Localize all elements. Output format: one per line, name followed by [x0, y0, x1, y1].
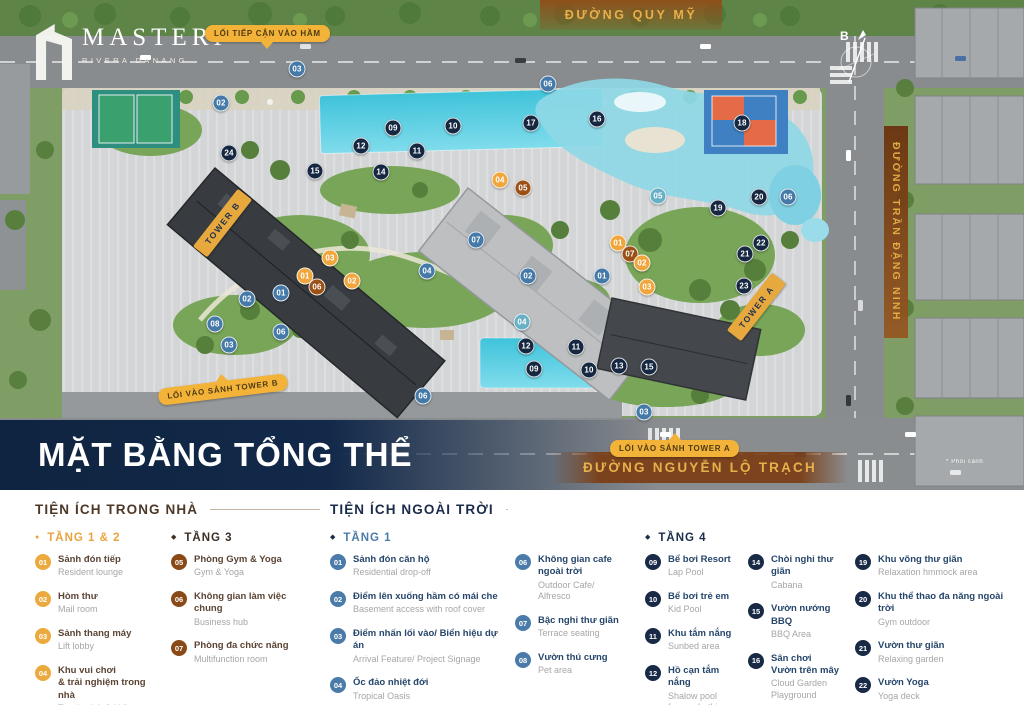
svg-text:B: B — [840, 29, 849, 43]
masteri-logo-icon — [36, 24, 72, 80]
item-name-en: Basement access with roof cover — [353, 604, 498, 616]
road-label-quy-my: ĐƯỜNG QUY MỸ — [540, 0, 722, 30]
map-marker-03: 03 — [322, 250, 339, 267]
item-name-vi: Vườn thú cưng — [538, 652, 608, 664]
legend-item: 19Khu võng thư giãnRelaxation hmmock are… — [855, 554, 1015, 579]
floor-group-label: TẦNG 1 — [343, 532, 391, 544]
legend-item: 22Vườn YogaYoga deck — [855, 677, 1015, 702]
item-name-en: Sunbed area — [668, 641, 731, 653]
item-name-en: Arrival Feature/ Project Signage — [353, 654, 505, 666]
item-name-en: Pet area — [538, 665, 608, 677]
indoor-amenities-section: TIỆN ÍCH TRONG NHÀ ●TẦNG 1 & 201Sảnh đón… — [35, 502, 320, 705]
map-marker-22: 22 — [753, 235, 770, 252]
item-name-vi: Hòm thư — [58, 591, 98, 603]
map-marker-20: 20 — [751, 189, 768, 206]
group-bullet-icon: ◆ — [645, 534, 650, 541]
map-marker-03: 03 — [289, 61, 306, 78]
legend-item: 03Điểm nhấn lối vào/ Biển hiệu dự ánArri… — [330, 628, 515, 665]
map-marker-01: 01 — [273, 285, 290, 302]
map-marker-11: 11 — [409, 143, 426, 160]
item-number-badge: 22 — [855, 677, 871, 693]
item-name-vi: Sảnh đón tiếp — [58, 554, 123, 566]
item-number-badge: 03 — [35, 628, 51, 644]
legend-column: 14Chòi nghỉ thư giãnCabana15Vườn nướng B… — [748, 530, 855, 705]
map-marker-02: 02 — [213, 95, 230, 112]
item-name-vi: Điểm nhấn lối vào/ Biển hiệu dự án — [353, 628, 505, 653]
item-number-badge: 11 — [645, 628, 661, 644]
map-marker-11: 11 — [568, 339, 585, 356]
item-name-en: Lift lobby — [58, 641, 131, 653]
site-plan-map: MASTERI RIVERA DANANG ĐƯỜNG QUY MỸ ĐƯỜNG… — [0, 0, 1024, 490]
group-bullet-icon: ◆ — [330, 534, 335, 541]
legend-item: 04Khu vui chơi & trải nghiệm trong nhàTe… — [35, 665, 171, 705]
item-number-badge: 15 — [748, 603, 764, 619]
map-marker-06: 06 — [415, 388, 432, 405]
item-name-vi: Vườn Yoga — [878, 677, 929, 689]
item-number-badge: 21 — [855, 640, 871, 656]
item-number-badge: 06 — [171, 591, 187, 607]
item-name-en: Cloud Garden Playground — [771, 678, 839, 701]
legend-item: 07Bậc nghỉ thư giãnTerrace seating — [515, 615, 645, 640]
basement-access-badge: LỐI TIẾP CẬN VÀO HẦM — [205, 25, 330, 42]
item-number-badge: 20 — [855, 591, 871, 607]
outdoor-section-title: TIỆN ÍCH NGOÀI TRỜI — [330, 502, 494, 517]
legend-item: 20Khu thể thao đa năng ngoài trờiGym out… — [855, 591, 1015, 628]
map-marker-21: 21 — [737, 246, 754, 263]
map-marker-08: 08 — [207, 316, 224, 333]
item-name-en: Terrace seating — [538, 628, 619, 640]
map-marker-03: 03 — [636, 404, 653, 421]
item-name-vi: Vườn thư giãn — [878, 640, 944, 652]
map-marker-12: 12 — [518, 338, 535, 355]
map-marker-05: 05 — [515, 180, 532, 197]
legend-item: 16Sân chơi Vườn trên mâyCloud Garden Pla… — [748, 653, 855, 702]
item-name-vi: Khu võng thư giãn — [878, 554, 978, 566]
item-number-badge: 16 — [748, 653, 764, 669]
legend-item: 02Điểm lên xuống hầm có mái cheBasement … — [330, 591, 515, 616]
map-marker-17: 17 — [523, 115, 540, 132]
item-name-vi: Vườn nướng BBQ — [771, 603, 845, 628]
item-number-badge: 19 — [855, 554, 871, 570]
legend-item: 15Vườn nướng BBQBBQ Area — [748, 603, 855, 640]
item-name-en: Relaxing garden — [878, 654, 944, 666]
item-name-vi: Khu vui chơi & trải nghiệm trong nhà — [58, 665, 161, 702]
item-name-en: Resident lounge — [58, 567, 123, 579]
map-marker-01: 01 — [594, 268, 611, 285]
map-marker-15: 15 — [307, 163, 324, 180]
map-marker-19: 19 — [710, 200, 727, 217]
legend-item: 07Phòng đa chức năngMultifunction room — [171, 640, 321, 665]
item-number-badge: 02 — [330, 591, 346, 607]
map-marker-06: 06 — [309, 279, 326, 296]
item-number-badge: 07 — [515, 615, 531, 631]
brand-logo: MASTERI RIVERA DANANG — [36, 24, 227, 80]
amenities-legend: TIỆN ÍCH TRONG NHÀ ●TẦNG 1 & 201Sảnh đón… — [0, 490, 1024, 705]
item-name-en: Relaxation hmmock area — [878, 567, 978, 579]
map-marker-04: 04 — [514, 314, 531, 331]
render-credit-note: * Phối cảnh — [946, 459, 983, 465]
legend-item: 11Khu tắm nắngSunbed area — [645, 628, 748, 653]
item-name-vi: Sảnh thang máy — [58, 628, 131, 640]
map-marker-03: 03 — [639, 279, 656, 296]
item-number-badge: 01 — [35, 554, 51, 570]
item-number-badge: 04 — [35, 665, 51, 681]
item-name-vi: Khu thể thao đa năng ngoài trời — [878, 591, 1005, 616]
map-marker-14: 14 — [373, 164, 390, 181]
legend-column: ◆TẦNG 409Bể bơi ResortLap Pool10Bể bơi t… — [645, 530, 748, 705]
legend-column: ●TẦNG 1 & 201Sảnh đón tiếpResident loung… — [35, 530, 171, 705]
item-name-vi: Hồ cạn tắm nắng — [668, 665, 738, 690]
map-marker-04: 04 — [492, 172, 509, 189]
item-name-vi: Bể bơi Resort — [668, 554, 731, 566]
legend-item: 06Không gian cafe ngoài trờiOutdoor Cafe… — [515, 554, 645, 603]
legend-item: 12Hồ cạn tắm nắngShalow pool for sun bat… — [645, 665, 748, 705]
item-number-badge: 09 — [645, 554, 661, 570]
legend-item: 01Sảnh đón tiếpResident lounge — [35, 554, 171, 579]
map-marker-06: 06 — [540, 76, 557, 93]
item-name-en: Business hub — [194, 617, 311, 629]
item-name-en: Yoga deck — [878, 691, 929, 703]
road-label-tran-dang-ninh: ĐƯỜNG TRẦN ĐẶNG NINH — [884, 126, 908, 338]
map-marker-02: 02 — [520, 268, 537, 285]
legend-item: 10Bể bơi trẻ emKid Pool — [645, 591, 748, 616]
item-name-vi: Phòng Gym & Yoga — [194, 554, 282, 566]
item-name-vi: Bể bơi trẻ em — [668, 591, 729, 603]
item-name-vi: Ốc đảo nhiệt đới — [353, 677, 428, 689]
divider-line — [210, 509, 320, 510]
page-title: MẶT BẰNG TỔNG THỂ — [38, 436, 412, 474]
floor-group-label: TẦNG 1 & 2 — [47, 532, 120, 544]
map-marker-09: 09 — [526, 361, 543, 378]
item-name-en: Kid Pool — [668, 604, 729, 616]
map-marker-10: 10 — [445, 118, 462, 135]
item-number-badge: 04 — [330, 677, 346, 693]
legend-column: 19Khu võng thư giãnRelaxation hmmock are… — [855, 530, 1015, 705]
legend-item: 01Sảnh đón căn hộResidential drop-off — [330, 554, 515, 579]
item-name-vi: Sân chơi Vườn trên mây — [771, 653, 839, 678]
item-number-badge: 05 — [171, 554, 187, 570]
legend-item: 08Vườn thú cưngPet area — [515, 652, 645, 677]
legend-item: 02Hòm thưMail room — [35, 591, 171, 616]
group-bullet-icon: ◆ — [171, 534, 176, 541]
map-marker-03: 03 — [221, 337, 238, 354]
item-name-en: Lap Pool — [668, 567, 731, 579]
tower-a-entrance-badge: LỐI VÀO SẢNH TOWER A — [610, 440, 739, 457]
map-marker-06: 06 — [780, 189, 797, 206]
compass-north-indicator: B — [828, 24, 884, 91]
item-name-en: Multifunction room — [194, 654, 289, 666]
map-marker-07: 07 — [468, 232, 485, 249]
item-name-vi: Điểm lên xuống hầm có mái che — [353, 591, 498, 603]
item-name-en: Tropical Oasis — [353, 691, 428, 703]
masterplan-page: MASTERI RIVERA DANANG ĐƯỜNG QUY MỸ ĐƯỜNG… — [0, 0, 1024, 705]
divider-line — [506, 509, 508, 510]
item-number-badge: 01 — [330, 554, 346, 570]
map-marker-06: 06 — [273, 324, 290, 341]
item-number-badge: 02 — [35, 591, 51, 607]
legend-item: 09Bể bơi ResortLap Pool — [645, 554, 748, 579]
map-marker-15: 15 — [641, 359, 658, 376]
map-marker-18: 18 — [734, 115, 751, 132]
map-marker-10: 10 — [581, 362, 598, 379]
item-name-vi: Sảnh đón căn hộ — [353, 554, 431, 566]
group-bullet-icon: ● — [35, 534, 39, 541]
legend-column: 06Không gian cafe ngoài trờiOutdoor Cafe… — [515, 530, 645, 705]
outdoor-amenities-section: TIỆN ÍCH NGOÀI TRỜI ◆TẦNG 101Sảnh đón că… — [330, 502, 1020, 705]
item-number-badge: 14 — [748, 554, 764, 570]
map-marker-13: 13 — [611, 358, 628, 375]
legend-column: ◆TẦNG 305Phòng Gym & YogaGym & Yoga06Khô… — [171, 530, 321, 705]
map-marker-04: 04 — [419, 263, 436, 280]
legend-item: 04Ốc đảo nhiệt đớiTropical Oasis — [330, 677, 515, 702]
floor-group-label: TẦNG 3 — [184, 532, 232, 544]
item-name-vi: Khu tắm nắng — [668, 628, 731, 640]
item-number-badge: 12 — [645, 665, 661, 681]
legend-item: 03Sảnh thang máyLift lobby — [35, 628, 171, 653]
item-name-en: Cabana — [771, 580, 845, 592]
item-name-en: Gym outdoor — [878, 617, 1005, 629]
legend-item: 21Vườn thư giãnRelaxing garden — [855, 640, 1015, 665]
item-number-badge: 03 — [330, 628, 346, 644]
legend-item: 14Chòi nghỉ thư giãnCabana — [748, 554, 855, 591]
item-number-badge: 06 — [515, 554, 531, 570]
legend-column: ◆TẦNG 101Sảnh đón căn hộResidential drop… — [330, 530, 515, 705]
item-name-en: Gym & Yoga — [194, 567, 282, 579]
map-marker-16: 16 — [589, 111, 606, 128]
item-name-vi: Bậc nghỉ thư giãn — [538, 615, 619, 627]
map-marker-02: 02 — [344, 273, 361, 290]
map-marker-24: 24 — [221, 145, 238, 162]
item-number-badge: 10 — [645, 591, 661, 607]
item-name-en: Outdoor Cafe/ Alfresco — [538, 580, 612, 603]
item-name-en: Residential drop-off — [353, 567, 431, 579]
floor-group-label: TẦNG 4 — [658, 532, 706, 544]
item-name-en: BBQ Area — [771, 629, 845, 641]
map-marker-09: 09 — [385, 120, 402, 137]
map-marker-23: 23 — [736, 278, 753, 295]
legend-item: 06Không gian làm việc chungBusiness hub — [171, 591, 321, 628]
item-name-vi: Không gian cafe ngoài trời — [538, 554, 612, 579]
brand-subtitle: RIVERA DANANG — [82, 56, 227, 65]
legend-item: 05Phòng Gym & YogaGym & Yoga — [171, 554, 321, 579]
map-marker-02: 02 — [239, 291, 256, 308]
indoor-section-title: TIỆN ÍCH TRONG NHÀ — [35, 502, 198, 517]
map-marker-05: 05 — [650, 188, 667, 205]
item-name-en: Shalow pool for sun bathing — [668, 691, 738, 705]
item-name-vi: Phòng đa chức năng — [194, 640, 289, 652]
item-name-en: Mail room — [58, 604, 98, 616]
item-name-vi: Không gian làm việc chung — [194, 591, 311, 616]
item-name-vi: Chòi nghỉ thư giãn — [771, 554, 845, 579]
item-number-badge: 07 — [171, 640, 187, 656]
item-number-badge: 08 — [515, 652, 531, 668]
tennis-court-left — [92, 90, 180, 148]
map-marker-02: 02 — [634, 255, 651, 272]
map-marker-12: 12 — [353, 138, 370, 155]
